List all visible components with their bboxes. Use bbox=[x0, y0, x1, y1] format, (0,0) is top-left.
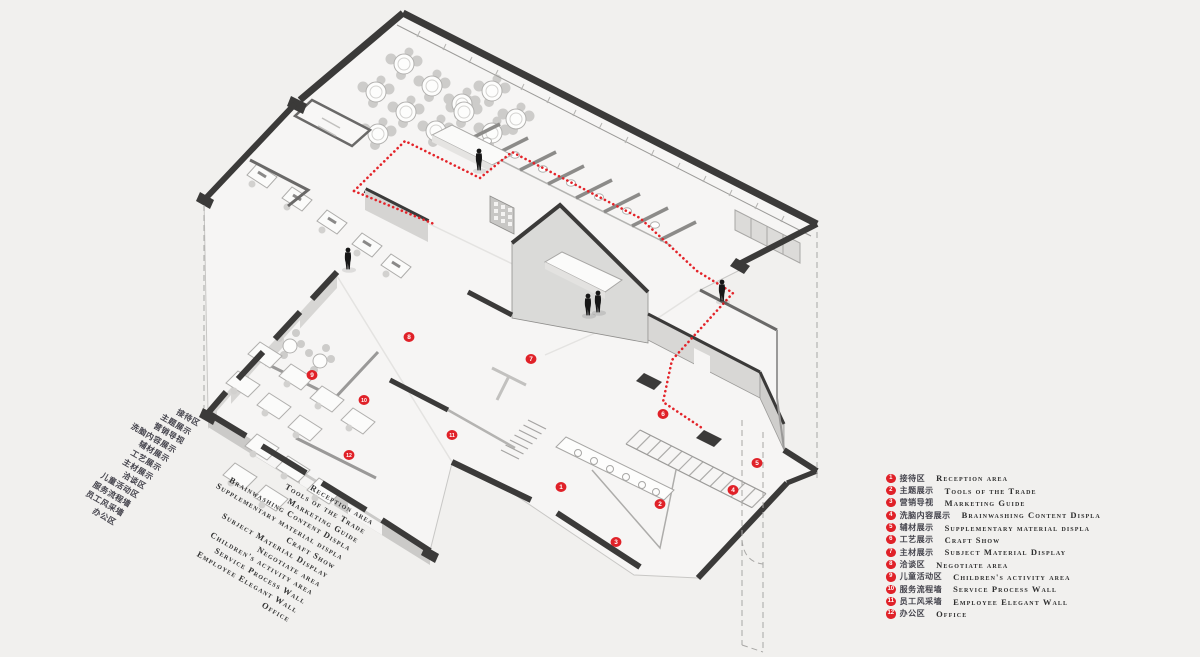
legend-number-bullet: 2 bbox=[886, 486, 896, 495]
legend-row: 7 主材展示 Subject Material Display bbox=[886, 546, 1101, 558]
svg-text:12: 12 bbox=[346, 453, 352, 459]
legend-label-en: Office bbox=[936, 609, 967, 619]
legend-number-bullet: 9 bbox=[886, 572, 896, 581]
legend-label-en: Tools of the Trade bbox=[945, 486, 1037, 496]
plan-marker: 6 bbox=[658, 409, 669, 419]
svg-text:6: 6 bbox=[661, 411, 665, 418]
plan-marker: 9 bbox=[307, 370, 318, 380]
legend-label-zh: 员工风采墙 bbox=[900, 596, 943, 607]
legend-number-bullet: 10 bbox=[886, 585, 896, 594]
svg-text:5: 5 bbox=[755, 460, 759, 467]
axonometric-floor-plan: 123456789101112 接待区Reception area主题展示Too… bbox=[0, 0, 1200, 657]
plan-marker: 8 bbox=[404, 332, 415, 342]
legend-label-zh: 儿童活动区 bbox=[900, 571, 943, 582]
svg-text:4: 4 bbox=[731, 487, 735, 494]
legend-number-bullet: 4 bbox=[886, 511, 896, 520]
plan-marker: 10 bbox=[359, 395, 370, 405]
legend-number-bullet: 7 bbox=[886, 548, 896, 557]
legend-row: 10 服务流程墙 Service Process Wall bbox=[886, 583, 1101, 595]
svg-text:7: 7 bbox=[529, 356, 533, 363]
legend-row: 9 儿童活动区 Children's activity area bbox=[886, 571, 1101, 583]
legend-row: 1 接待区 Reception area bbox=[886, 472, 1101, 484]
legend-label-zh: 营销导视 bbox=[900, 497, 934, 508]
legend-label-zh: 接待区 bbox=[900, 473, 926, 484]
legend-row: 2 主题展示 Tools of the Trade bbox=[886, 484, 1101, 496]
plan-marker: 4 bbox=[728, 485, 739, 495]
legend-label-zh: 服务流程墙 bbox=[900, 584, 943, 595]
legend-label-zh: 主材展示 bbox=[900, 547, 934, 558]
legend-row: 11 员工风采墙 Employee Elegant Wall bbox=[886, 595, 1101, 607]
legend-number-bullet: 11 bbox=[886, 597, 896, 606]
legend-label-en: Negotiate area bbox=[936, 560, 1008, 570]
plan-marker: 12 bbox=[344, 450, 355, 460]
plan-marker: 11 bbox=[447, 430, 458, 440]
legend-label-en: Employee Elegant Wall bbox=[953, 597, 1068, 607]
legend-label-en: Craft Show bbox=[945, 535, 1001, 545]
legend-row: 3 营销导视 Marketing Guide bbox=[886, 497, 1101, 509]
svg-text:10: 10 bbox=[361, 398, 367, 404]
legend-number-bullet: 12 bbox=[886, 609, 896, 618]
svg-text:8: 8 bbox=[407, 334, 411, 341]
legend-label-en: Reception area bbox=[936, 473, 1008, 483]
legend-row: 5 辅材展示 Supplementary material displa bbox=[886, 521, 1101, 533]
legend-label-en: Marketing Guide bbox=[945, 498, 1026, 508]
legend-label-zh: 洽谈区 bbox=[900, 559, 926, 570]
svg-text:1: 1 bbox=[559, 484, 563, 491]
legend-number-bullet: 3 bbox=[886, 498, 896, 507]
plan-marker: 1 bbox=[556, 482, 567, 492]
svg-text:11: 11 bbox=[449, 433, 455, 439]
svg-text:3: 3 bbox=[614, 539, 618, 546]
legend-label-en: Children's activity area bbox=[953, 572, 1071, 582]
legend-label-zh: 主题展示 bbox=[900, 485, 934, 496]
legend-number-bullet: 6 bbox=[886, 535, 896, 544]
plan-marker: 2 bbox=[655, 499, 666, 509]
legend: 1 接待区 Reception area 2 主题展示 Tools of the… bbox=[886, 472, 1101, 620]
legend-number-bullet: 5 bbox=[886, 523, 896, 532]
legend-label-en: Service Process Wall bbox=[953, 584, 1057, 594]
legend-label-en: Subject Material Display bbox=[945, 547, 1067, 557]
legend-label-en: Brainwashing Content Displa bbox=[962, 510, 1101, 520]
legend-row: 8 洽谈区 Negotiate area bbox=[886, 558, 1101, 570]
plan-marker: 3 bbox=[611, 537, 622, 547]
legend-row: 6 工艺展示 Craft Show bbox=[886, 534, 1101, 546]
legend-row: 4 洗脑内容展示 Brainwashing Content Displa bbox=[886, 509, 1101, 521]
svg-text:2: 2 bbox=[658, 501, 662, 508]
svg-text:9: 9 bbox=[310, 372, 314, 379]
legend-label-zh: 洗脑内容展示 bbox=[900, 510, 951, 521]
plan-marker: 7 bbox=[526, 354, 537, 364]
legend-label-zh: 辅材展示 bbox=[900, 522, 934, 533]
legend-label-en: Supplementary material displa bbox=[945, 523, 1090, 533]
legend-number-bullet: 1 bbox=[886, 474, 896, 483]
legend-row: 12 办公区 Office bbox=[886, 608, 1101, 620]
legend-label-zh: 办公区 bbox=[900, 608, 926, 619]
legend-label-zh: 工艺展示 bbox=[900, 534, 934, 545]
plan-marker: 5 bbox=[752, 458, 763, 468]
legend-number-bullet: 8 bbox=[886, 560, 896, 569]
